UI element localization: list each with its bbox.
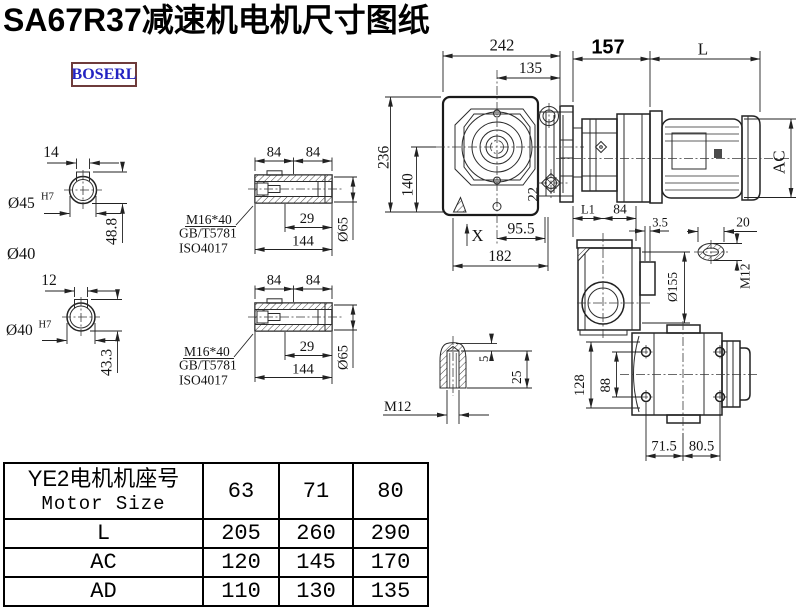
- table-cell: 120: [203, 548, 279, 577]
- view-hollow-shaft-top: 84 84 29 144 Ø65 M16*40 GB/T5781 ISO4017: [179, 145, 357, 257]
- table-cell: 290: [353, 519, 428, 548]
- dim-hollow2-depth: 29: [300, 339, 315, 355]
- view-hollow-shaft-bottom: 84 84 29 144 Ø65 M16*40 GB/T5781 ISO4017: [179, 273, 357, 388]
- dim-shaft45-height: 48.8: [104, 218, 121, 245]
- dim-hollow-depth: 29: [300, 211, 315, 227]
- dim-key-thread: M12: [384, 399, 411, 415]
- view-gearmotor-side: 157 L AC L1 84: [556, 37, 796, 242]
- table-row-label-L: L: [4, 519, 203, 548]
- table-cell: 145: [279, 548, 353, 577]
- label-standard-iso: ISO4017: [179, 241, 228, 256]
- dim-front-plug: 22: [526, 187, 542, 202]
- dim-side-flange-dia: Ø155: [665, 272, 680, 302]
- brand-logo: BOSERL: [71, 62, 137, 87]
- dim-key-depth: 25: [509, 370, 524, 384]
- dim-bottom-p1: 71.5: [651, 439, 676, 455]
- table-header-cn: YE2电机机座号: [5, 466, 202, 492]
- dim-front-width: 242: [490, 36, 515, 55]
- dim-side-gap: 3.5: [652, 216, 668, 230]
- dim-bottom-p2: 80.5: [689, 439, 714, 455]
- view-gearbox-flange-side: 3.5 Ø155: [577, 216, 690, 341]
- table-cell: 135: [353, 577, 428, 606]
- table-header-en: Motor Size: [5, 492, 202, 517]
- dim-front-foot1: 95.5: [507, 221, 534, 238]
- table-row-label-AC: AC: [4, 548, 203, 577]
- brand-logo-text: BOSERL: [72, 66, 137, 84]
- view-key-end-detail: 5 25 M12: [383, 335, 532, 424]
- table-cell: 130: [279, 577, 353, 606]
- dim-key-cap: 5: [477, 356, 491, 362]
- view-gearbox-front: X 242 135 236 140 22 95.5 182: [376, 36, 585, 272]
- dim-hollow-dia: Ø65: [336, 217, 352, 242]
- dim-shaft45-tolerance: H7: [41, 192, 54, 203]
- view-bore-section-45: 14 Ø45 H7 48.8 Ø40: [7, 144, 127, 263]
- table-row: L 205 260 290: [4, 519, 428, 548]
- table-cell: 205: [203, 519, 279, 548]
- dim-motor-l1: L1: [581, 203, 595, 217]
- dim-shaft40-keyway: 12: [41, 272, 57, 289]
- table-cell: 110: [203, 577, 279, 606]
- label-shaft-od: Ø40: [7, 244, 35, 263]
- view-keyway-slot-detail: 20 M12: [687, 215, 757, 290]
- table-header-size-80: 80: [353, 463, 428, 519]
- view-gearbox-bottom: 128 88 71.5 80.5: [572, 321, 758, 461]
- dim-front-foot2: 182: [488, 248, 511, 265]
- dim-bottom-bolt-height: 88: [598, 378, 614, 393]
- dim-shaft45-bore: Ø45: [8, 195, 35, 212]
- view-bore-section-40: 12 Ø40 H7 43.3: [6, 272, 122, 376]
- table-header-title-cell: YE2电机机座号 Motor Size: [4, 463, 203, 519]
- dim-hollow-b: 84: [306, 145, 321, 161]
- dim-front-height: 236: [376, 146, 393, 170]
- page-title: SA67R37减速机电机尺寸图纸: [3, 0, 430, 40]
- dim-hollow2-length: 144: [292, 362, 315, 378]
- dim-hollow-a: 84: [267, 145, 282, 161]
- dim-hollow-length: 144: [292, 234, 315, 250]
- table-cell: 170: [353, 548, 428, 577]
- dim-slot-thread: M12: [738, 263, 753, 289]
- table-row: AC 120 145 170: [4, 548, 428, 577]
- motor-size-table: YE2电机机座号 Motor Size 63 71 80 L 205 260 2…: [3, 462, 429, 607]
- table-row-label-AD: AD: [4, 577, 203, 606]
- dim-motor-dia-AC: AC: [770, 150, 789, 174]
- label-standard-gb-2: GB/T5781: [179, 358, 237, 373]
- dim-shaft40-height: 43.3: [99, 349, 116, 376]
- dim-front-center-height: 140: [400, 173, 417, 197]
- dim-motor-c: 84: [613, 202, 627, 217]
- dim-hollow2-b: 84: [306, 273, 321, 289]
- table-cell: 260: [279, 519, 353, 548]
- table-header-size-71: 71: [279, 463, 353, 519]
- dim-shaft40-tolerance: H7: [39, 320, 52, 331]
- dim-shaft40-bore: Ø40: [6, 322, 33, 339]
- dim-front-half: 135: [519, 60, 543, 77]
- table-header-size-63: 63: [203, 463, 279, 519]
- label-standard-iso-2: ISO4017: [179, 373, 228, 388]
- dim-hollow2-dia: Ø65: [336, 345, 352, 370]
- dim-hollow2-a: 84: [267, 273, 282, 289]
- table-row: AD 110 130 135: [4, 577, 428, 606]
- label-standard-gb: GB/T5781: [179, 226, 237, 241]
- dim-shaft45-keyway: 14: [43, 144, 59, 161]
- dim-motor-length-L: L: [698, 40, 708, 59]
- dim-motor-gear-length: 157: [591, 37, 624, 59]
- dim-slot-length: 20: [736, 215, 750, 230]
- dim-bottom-height: 128: [572, 374, 588, 396]
- label-view-x: X: [472, 226, 484, 245]
